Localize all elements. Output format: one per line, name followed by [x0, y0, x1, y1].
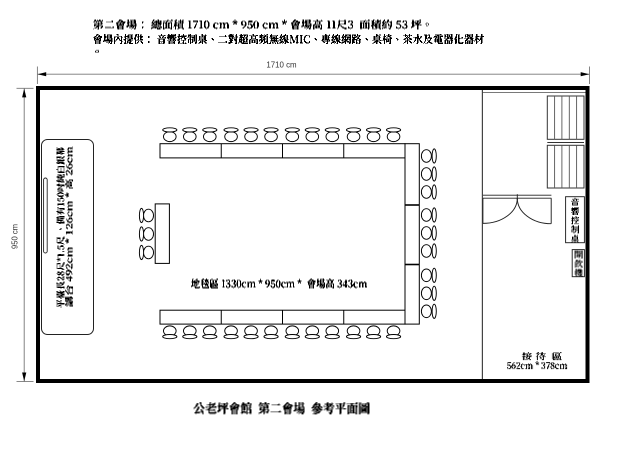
svg-text:950 cm: 950 cm — [10, 224, 19, 249]
svg-text:1710 cm: 1710 cm — [266, 61, 297, 70]
